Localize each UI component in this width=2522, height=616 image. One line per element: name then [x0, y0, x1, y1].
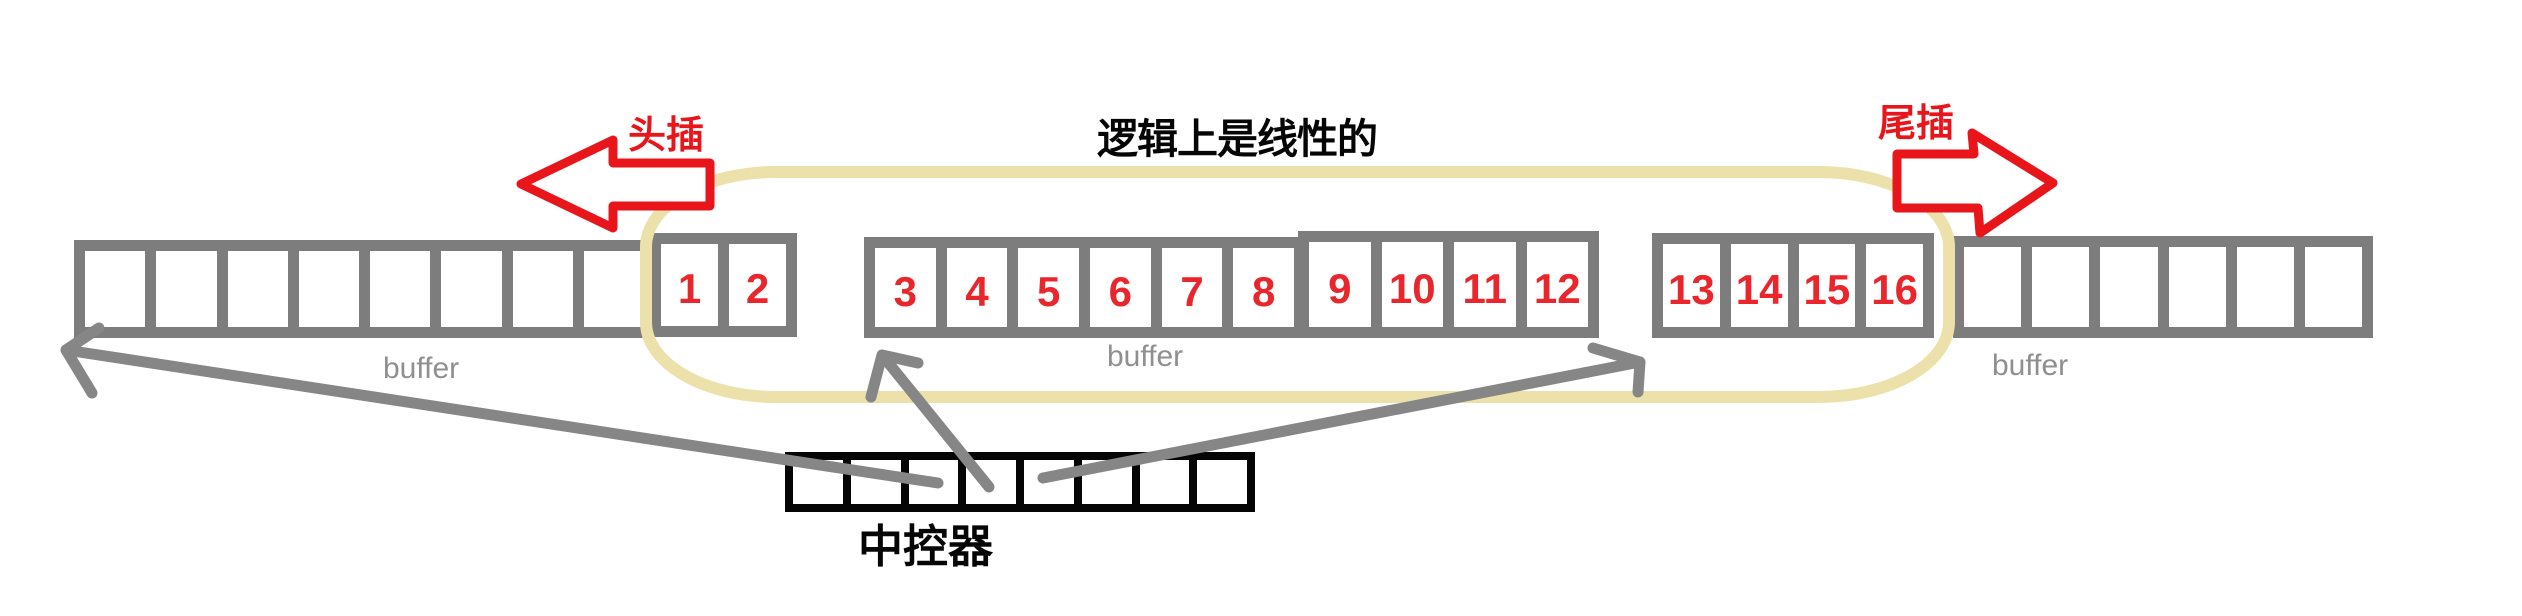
buffer-label-middle: buffer: [1107, 342, 1183, 372]
logically-linear-title: 逻辑上是线性的: [1097, 119, 1377, 160]
buffer-label-left: buffer: [383, 354, 459, 384]
deque-diagram-canvas: 12345678910111213141516 头插 逻辑上是线性的 尾插 bu…: [0, 0, 2522, 616]
text-layer: 头插 逻辑上是线性的 尾插 buffer buffer buffer 中控器: [0, 0, 2522, 616]
controller-label: 中控器: [858, 524, 993, 569]
buffer-label-right: buffer: [1992, 351, 2068, 381]
tail-insert-label: 尾插: [1878, 105, 1954, 143]
head-insert-label: 头插: [628, 117, 704, 155]
